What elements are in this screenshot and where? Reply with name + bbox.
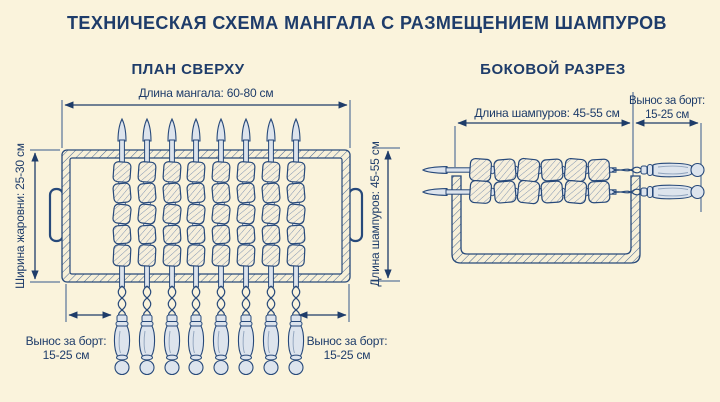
dim-label-overhang-left-2: 15-25 см [43,348,90,362]
technical-diagram-page: ТЕХНИЧЕСКАЯ СХЕМА МАНГАЛА С РАЗМЕЩЕНИЕМ … [0,0,720,402]
dim-label-overhang-right-2: 15-25 см [324,348,371,362]
dim-label-skewer-length: Длина шампуров: 45-55 см [368,141,382,286]
diagram-canvas: ТЕХНИЧЕСКАЯ СХЕМА МАНГАЛА С РАЗМЕЩЕНИЕМ … [0,0,720,402]
page-title: ТЕХНИЧЕСКАЯ СХЕМА МАНГАЛА С РАЗМЕЩЕНИЕМ … [67,13,667,33]
grill-handle-left [50,189,63,241]
dim-label-brazier-width: Ширина жаровни: 25-30 см [13,143,27,289]
top-view-label: ПЛАН СВЕРХУ [131,61,244,78]
dim-label-overhang-1: Вынос за борт: [629,95,705,107]
dim-label-skewer-length: Длина шампуров: 45-55 см [474,106,619,120]
dim-label-mangal-length: Длина мангала: 60-80 см [139,86,274,100]
grill-handle-right [349,189,362,241]
dim-label-overhang-right-1: Вынос за борт: [307,334,388,348]
dim-label-overhang-2: 15-25 см [645,109,689,121]
dim-label-overhang-left-1: Вынос за борт: [26,334,107,348]
side-view-label: БОКОВОЙ РАЗРЕЗ [480,60,626,78]
